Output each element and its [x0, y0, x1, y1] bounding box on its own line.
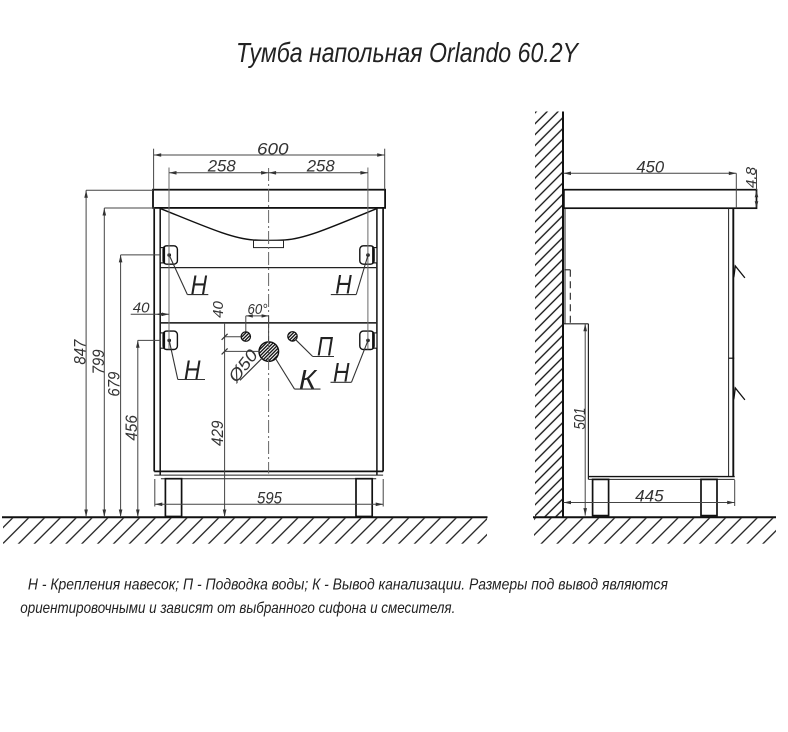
svg-text:258: 258: [207, 156, 237, 175]
svg-text:Н - Крепления навесок; П - Под: Н - Крепления навесок; П - Подводка воды…: [28, 576, 668, 593]
svg-text:450: 450: [636, 158, 664, 177]
svg-text:679: 679: [106, 372, 124, 397]
svg-text:799: 799: [90, 349, 108, 374]
svg-text:445: 445: [635, 487, 664, 506]
svg-text:Тумба напольная Orlando 60.2Y: Тумба напольная Orlando 60.2Y: [236, 37, 580, 68]
svg-text:456: 456: [123, 414, 141, 440]
svg-text:595: 595: [257, 489, 282, 508]
svg-text:Н: Н: [184, 355, 201, 385]
svg-text:847: 847: [72, 339, 90, 365]
svg-text:П: П: [317, 332, 333, 362]
svg-text:258: 258: [306, 156, 336, 175]
svg-text:600: 600: [257, 140, 289, 159]
svg-text:К: К: [299, 364, 318, 394]
svg-text:501: 501: [572, 408, 589, 430]
svg-text:4.8: 4.8: [743, 166, 760, 188]
svg-text:Н: Н: [335, 269, 352, 299]
svg-text:Н: Н: [333, 358, 350, 388]
svg-text:Н: Н: [191, 270, 208, 300]
svg-text:ориентировочными и зависят от: ориентировочными и зависят от выбранного…: [20, 600, 455, 617]
svg-text:60°: 60°: [248, 301, 268, 318]
svg-text:40: 40: [133, 300, 150, 317]
svg-text:429: 429: [209, 421, 227, 447]
svg-text:40: 40: [210, 301, 227, 318]
